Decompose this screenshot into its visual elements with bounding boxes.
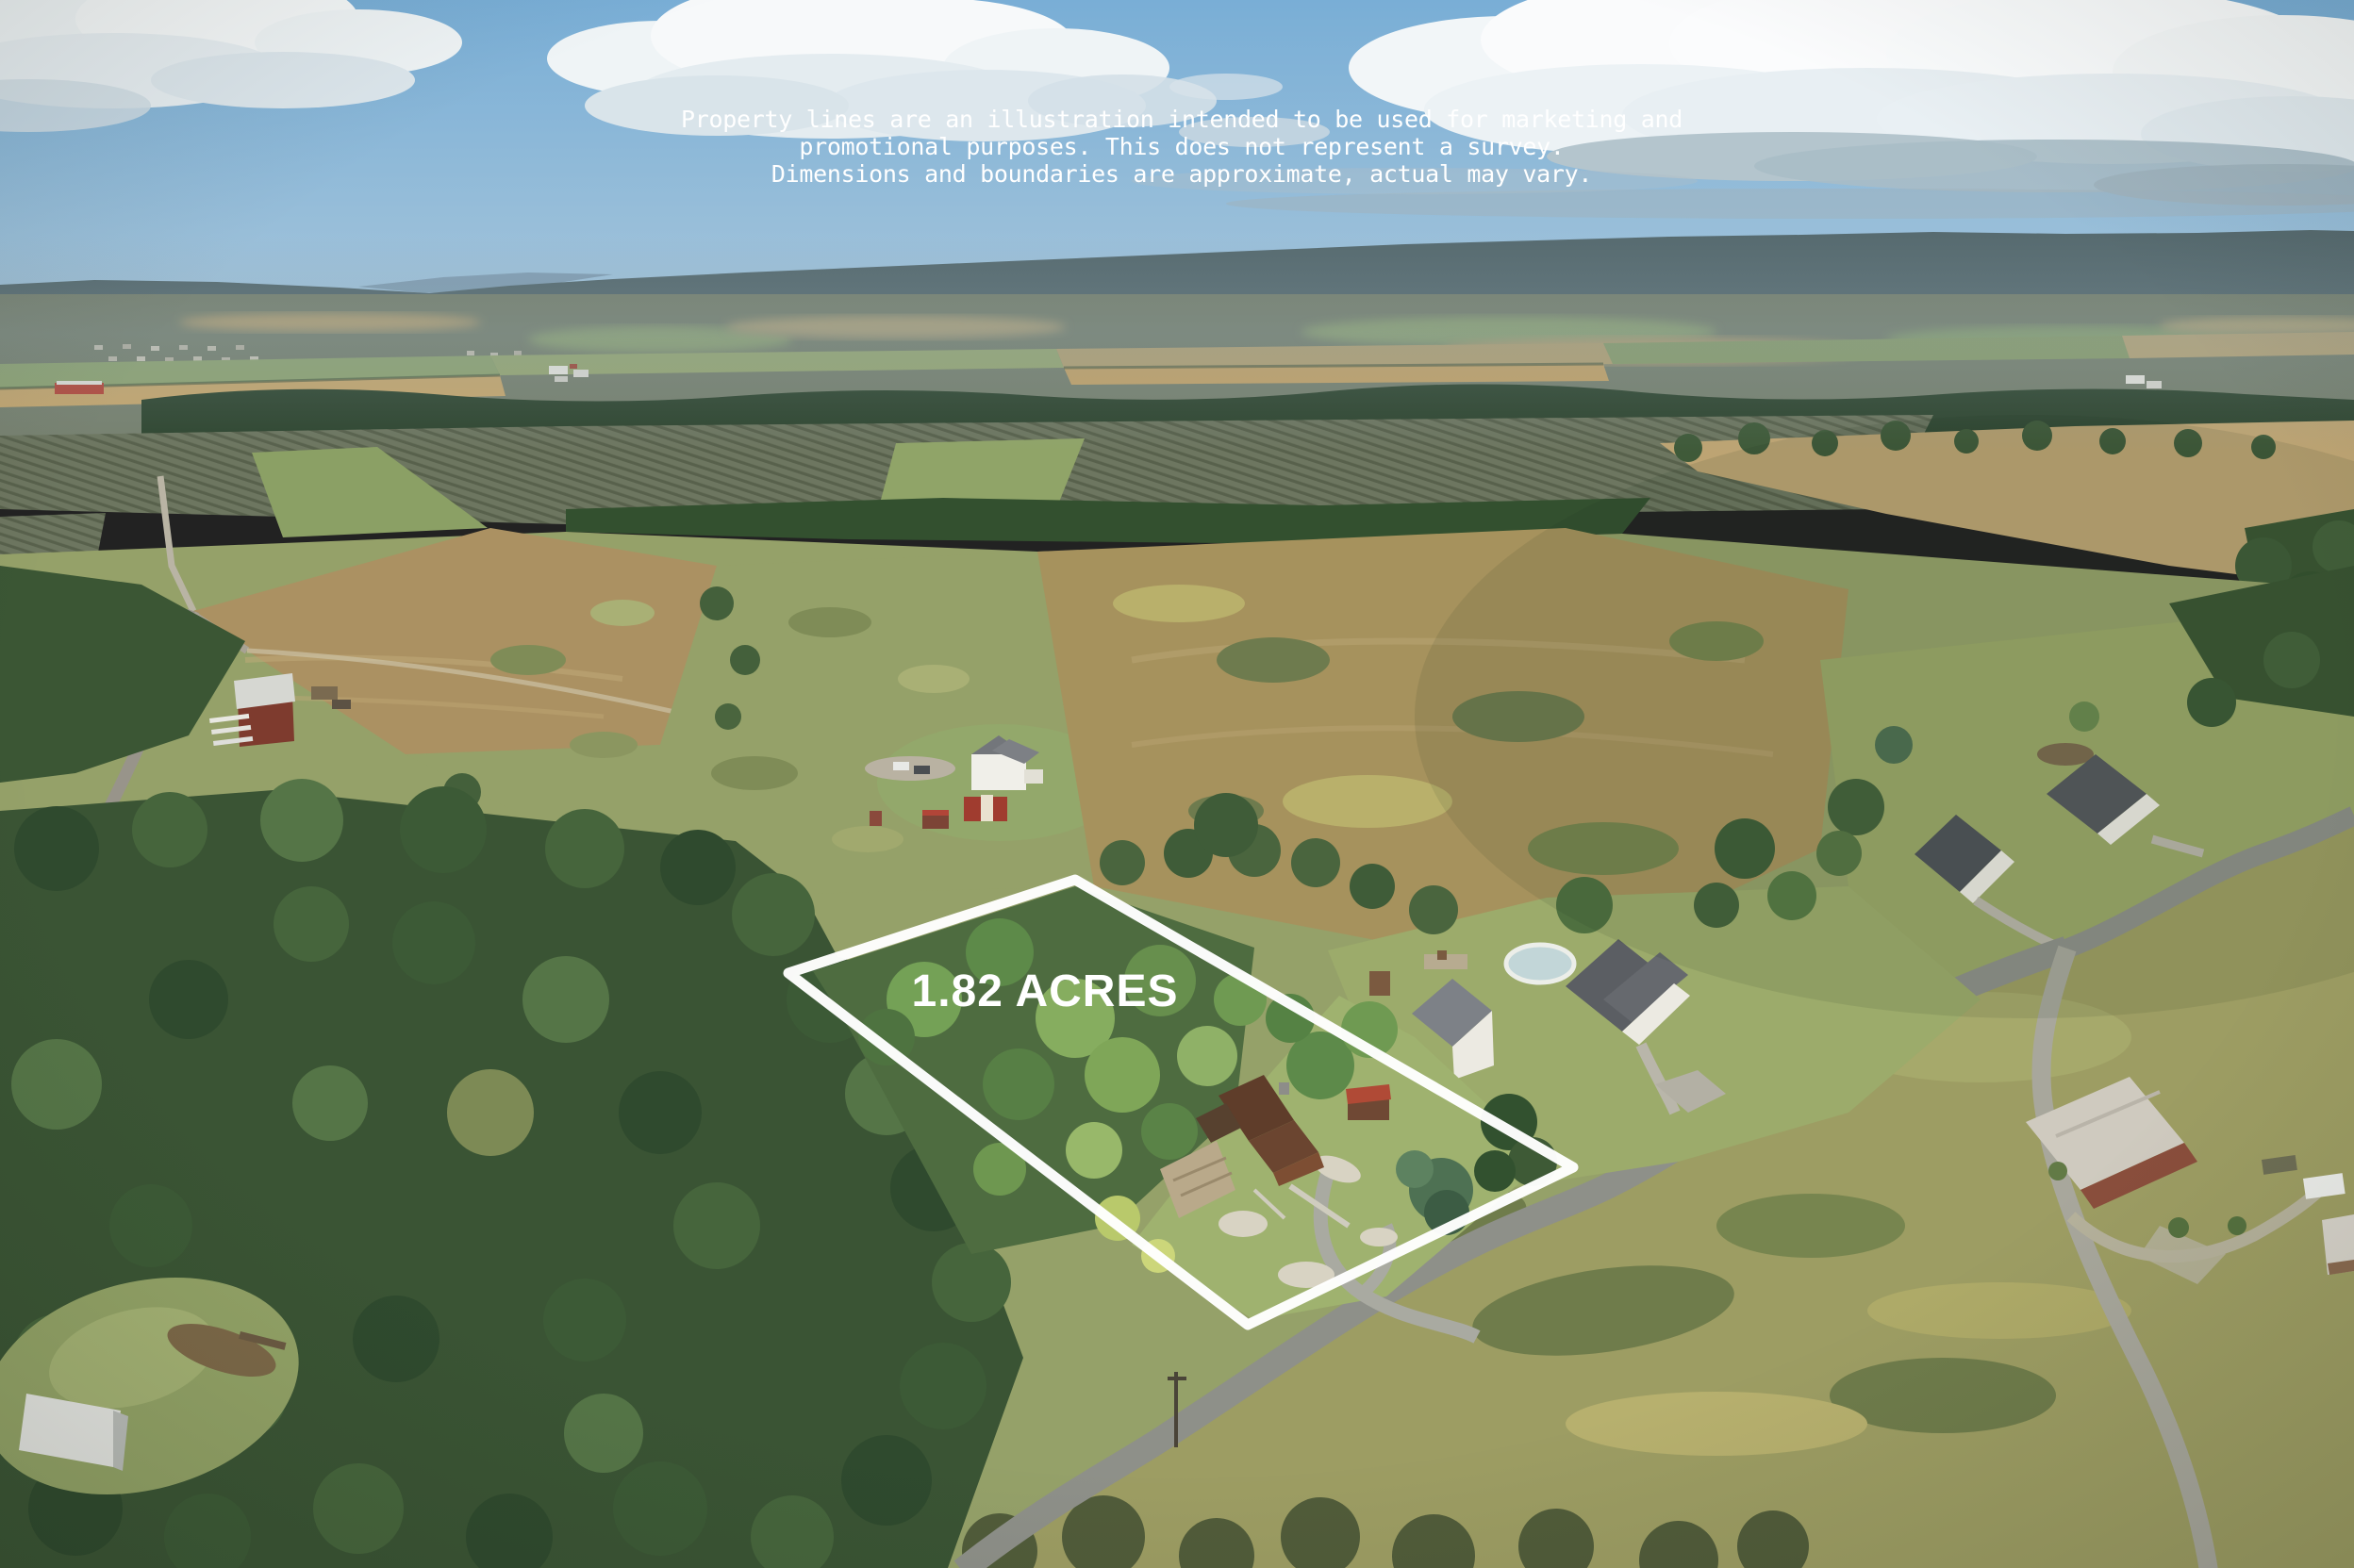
aerial-photo: Property lines are an illustration inten… bbox=[0, 0, 2354, 1568]
aerial-scene bbox=[0, 0, 2354, 1568]
vignette bbox=[0, 0, 2354, 1568]
